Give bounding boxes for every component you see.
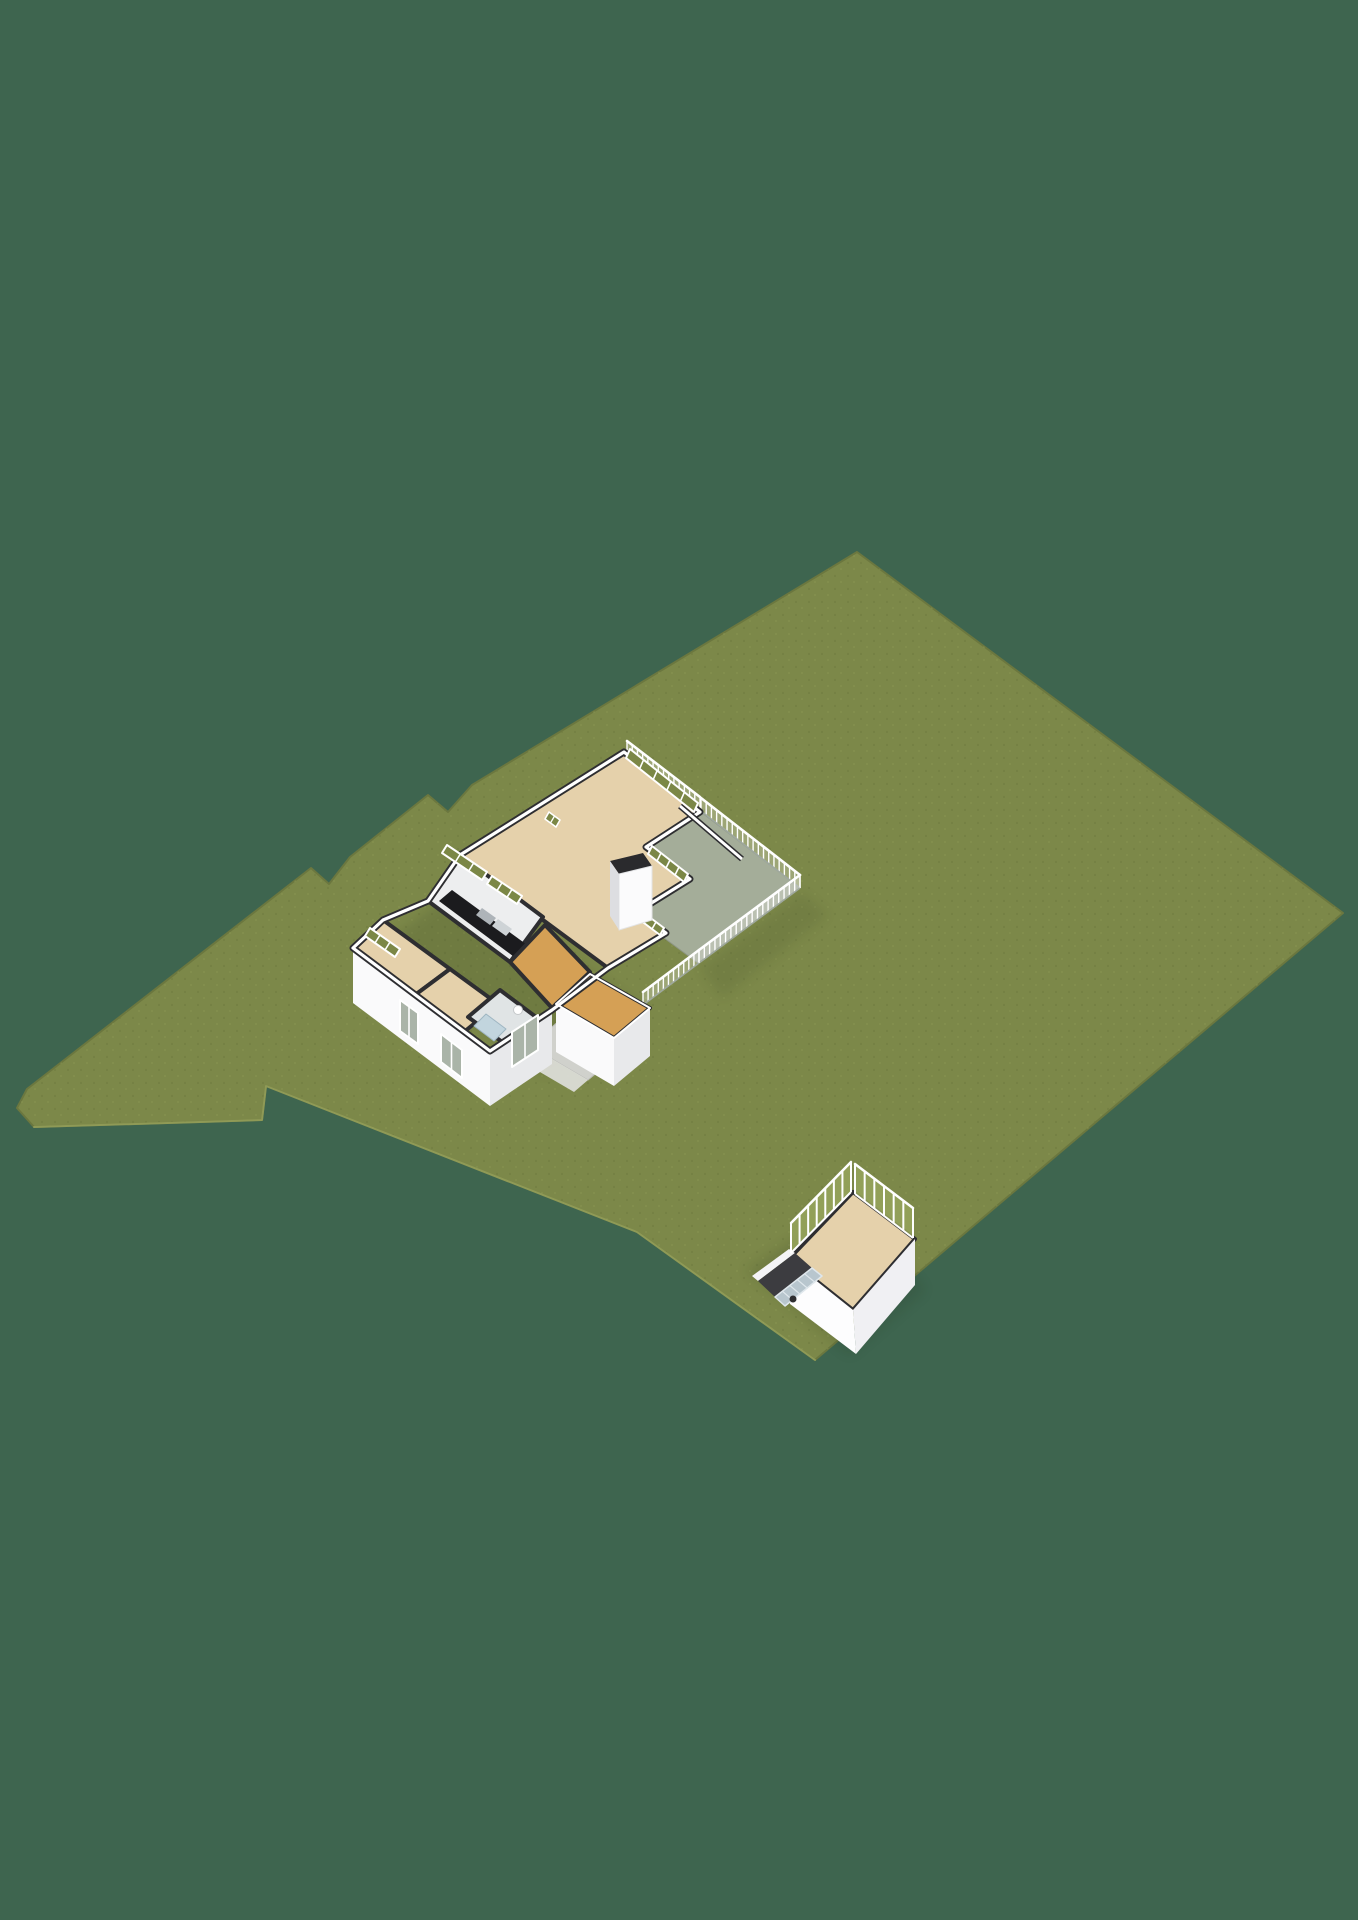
scene <box>0 0 1358 1920</box>
floorplan-3d-view <box>0 0 1358 1920</box>
outbuilding-step-object <box>790 1296 797 1303</box>
toilet <box>514 1006 523 1015</box>
fireplace-front <box>619 866 652 930</box>
